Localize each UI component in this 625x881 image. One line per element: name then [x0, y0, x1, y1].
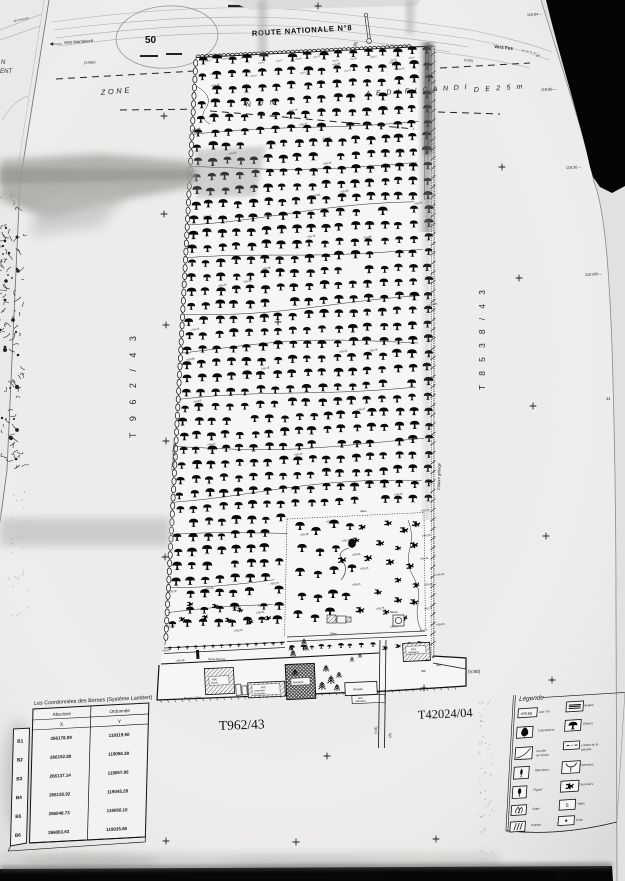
svg-text:ENT: ENT: [0, 69, 13, 75]
svg-text:Arcade: Arcade: [353, 687, 363, 691]
svg-text:Bassin: Bassin: [390, 610, 398, 614]
svg-text:T962/43: T962/43: [219, 716, 265, 733]
svg-text:B6: B6: [15, 833, 22, 839]
svg-text:B1: B1: [17, 738, 24, 744]
svg-text:Bergerie: Bergerie: [293, 680, 304, 684]
svg-text:Palmier: Palmier: [531, 823, 541, 828]
svg-text:Sapin: Sapin: [532, 806, 540, 810]
svg-text:Ordonnée: Ordonnée: [109, 708, 130, 714]
svg-text:T 9 6 2 / 4 3: T 9 6 2 / 4 3: [128, 332, 138, 438]
svg-text:+59.68: +59.68: [520, 711, 533, 717]
svg-text:(V.8): (V.8): [374, 727, 378, 734]
svg-text:N: N: [1, 60, 6, 66]
svg-text:11: 11: [606, 396, 611, 401]
svg-text:(B3): (B3): [425, 658, 430, 662]
svg-text:119.84→: 119.84→: [527, 12, 543, 17]
svg-text:(A): (A): [388, 733, 392, 738]
svg-text:(B2): (B2): [436, 663, 441, 667]
svg-text:Seguia: Seguia: [584, 703, 594, 708]
svg-text:Habitation: Habitation: [355, 700, 367, 704]
svg-text:de niveau: de niveau: [536, 753, 550, 758]
svg-text:de gardien: de gardien: [254, 692, 266, 696]
svg-text:Mur de 2.20m: Mur de 2.20m: [184, 695, 202, 700]
svg-text:B5: B5: [15, 814, 22, 820]
svg-text:50: 50: [145, 35, 157, 46]
svg-text:(V.Mar): (V.Mar): [84, 60, 96, 65]
svg-text:Porch.: Porch.: [211, 681, 219, 685]
svg-text:cote TN: cote TN: [539, 709, 550, 714]
svg-text:B4: B4: [16, 795, 23, 801]
svg-text:parcelle: parcelle: [581, 747, 592, 752]
svg-text:(B4): (B4): [421, 669, 426, 673]
svg-text:Clôture grillage: Clôture grillage: [436, 462, 441, 490]
svg-text:T 8 5 3 8 / 4 3: T 8 5 3 8 / 4 3: [477, 287, 487, 390]
svg-text:Pommiers: Pommiers: [580, 762, 594, 767]
svg-text:119.86—: 119.86—: [541, 87, 557, 92]
svg-text:Puits: Puits: [576, 818, 583, 822]
svg-text:(V.80): (V.80): [468, 669, 481, 674]
svg-text:Vigne: Vigne: [577, 801, 585, 805]
svg-text:Oliviers: Oliviers: [583, 721, 594, 726]
svg-text:T42024/04: T42024/04: [418, 706, 474, 722]
svg-text:Allée: Allée: [360, 509, 367, 513]
svg-text:B2: B2: [17, 757, 24, 763]
svg-text:B3: B3: [16, 776, 23, 782]
svg-text:Abscisse: Abscisse: [53, 711, 72, 717]
svg-text:119.26→: 119.26→: [566, 165, 582, 170]
svg-text:Allée: Allée: [330, 632, 337, 636]
svg-text:Figuier: Figuier: [533, 787, 542, 792]
svg-text:Habitation: Habitation: [408, 651, 420, 655]
